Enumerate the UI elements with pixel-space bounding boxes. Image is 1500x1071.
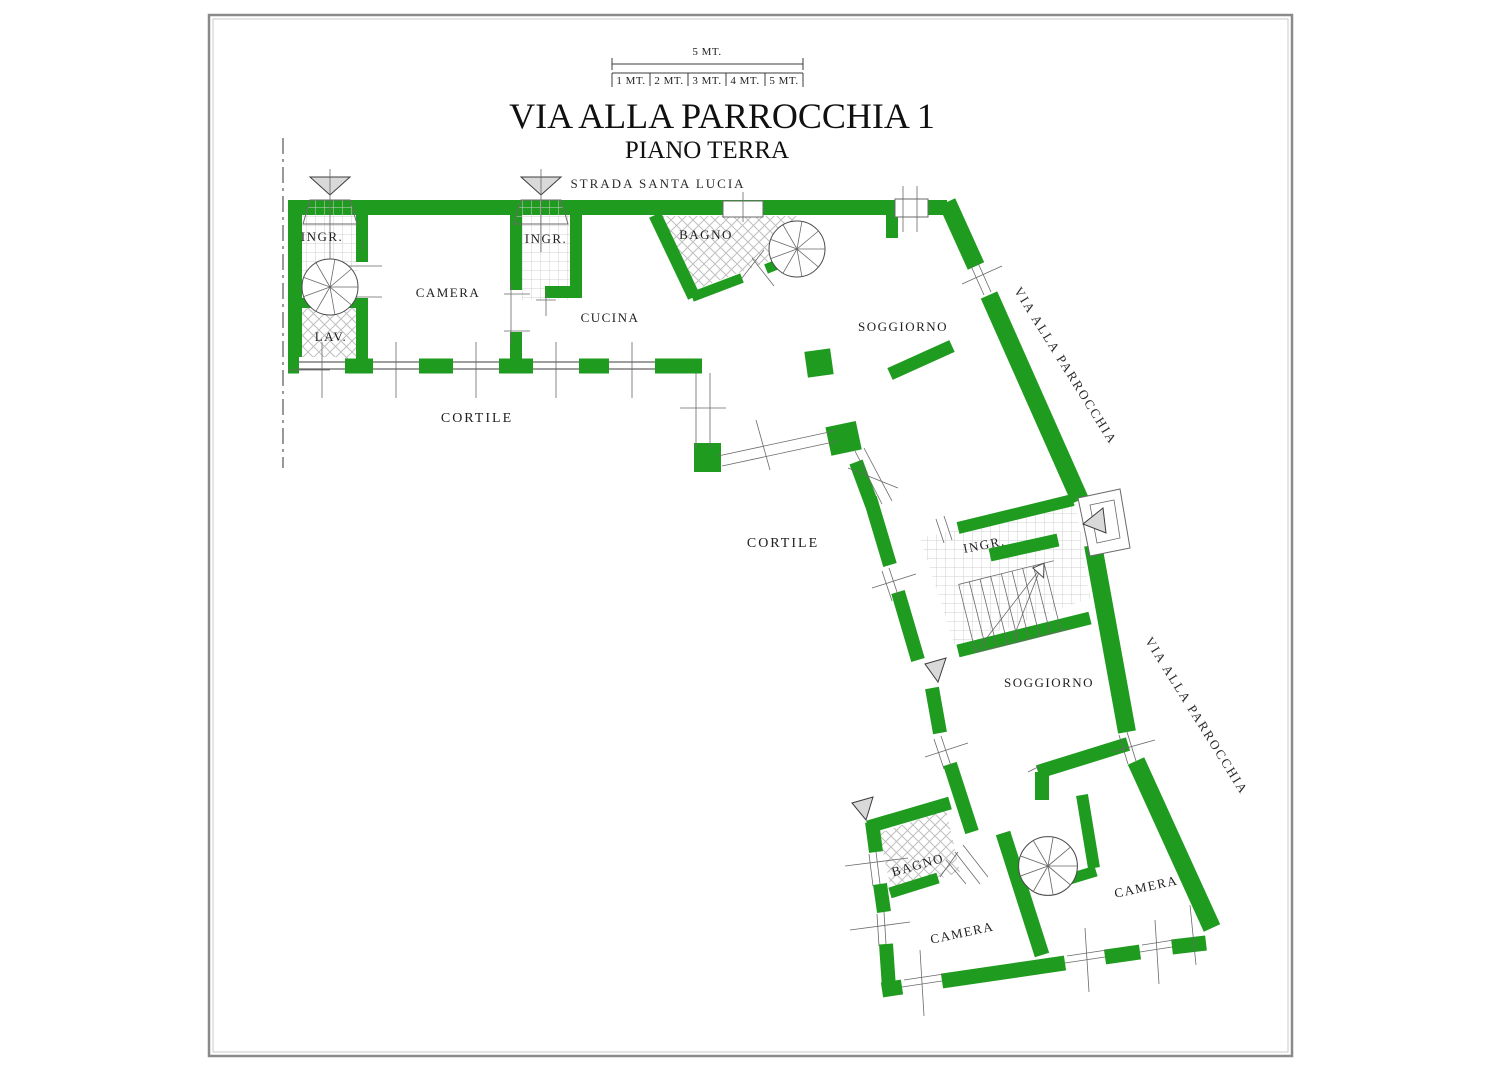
page-subtitle: PIANO TERRA bbox=[625, 137, 789, 164]
entrance-arrow-icon bbox=[852, 797, 873, 820]
room-label-ingresso-n: INGR. bbox=[525, 231, 568, 246]
spiral-stair-n bbox=[769, 221, 825, 277]
room-label-soggiorno-s: SOGGIORNO bbox=[1004, 675, 1094, 690]
area-label-cortile-upper: CORTILE bbox=[441, 411, 513, 426]
floorplan-canvas: 5 MT. 1 MT. 2 MT. 3 MT. 4 MT. 5 MT. VIA … bbox=[0, 0, 1500, 1071]
room-label-camera-nw: CAMERA bbox=[416, 285, 481, 300]
room-label-camera-se: CAMERA bbox=[1113, 873, 1179, 901]
room-label-lavanderia: LAV. bbox=[315, 329, 348, 344]
page-title: VIA ALLA PARROCCHIA 1 bbox=[509, 96, 935, 136]
street-label-strada-santa-lucia: STRADA SANTA LUCIA bbox=[570, 176, 745, 191]
floorplan-page: 5 MT. 1 MT. 2 MT. 3 MT. 4 MT. 5 MT. VIA … bbox=[0, 0, 1500, 1071]
room-label-soggiorno-n: SOGGIORNO bbox=[858, 319, 948, 334]
room-label-bagno-n: BAGNO bbox=[679, 227, 733, 242]
scale-seg-2: 2 MT. bbox=[654, 75, 683, 87]
scale-seg-4: 4 MT. bbox=[730, 75, 759, 87]
area-label-cortile-lower: CORTILE bbox=[747, 536, 819, 551]
room-label-ingresso-nw: INGR. bbox=[301, 229, 344, 244]
scale-total-label: 5 MT. bbox=[692, 46, 721, 58]
scale-bar: 5 MT. 1 MT. 2 MT. 3 MT. 4 MT. 5 MT. bbox=[612, 46, 803, 87]
scale-seg-3: 3 MT. bbox=[692, 75, 721, 87]
street-label-via-alla-parrocchia-lower: VIA ALLA PARROCCHIA bbox=[1142, 634, 1252, 797]
scale-seg-1: 1 MT. bbox=[616, 75, 645, 87]
spiral-stair-nw bbox=[302, 259, 358, 315]
room-label-camera-sw: CAMERA bbox=[929, 919, 995, 947]
spiral-stair-s bbox=[1019, 837, 1078, 896]
scale-seg-5: 5 MT. bbox=[769, 75, 798, 87]
room-label-cucina: CUCINA bbox=[581, 310, 640, 325]
entrance-arrow-icon bbox=[925, 658, 946, 682]
